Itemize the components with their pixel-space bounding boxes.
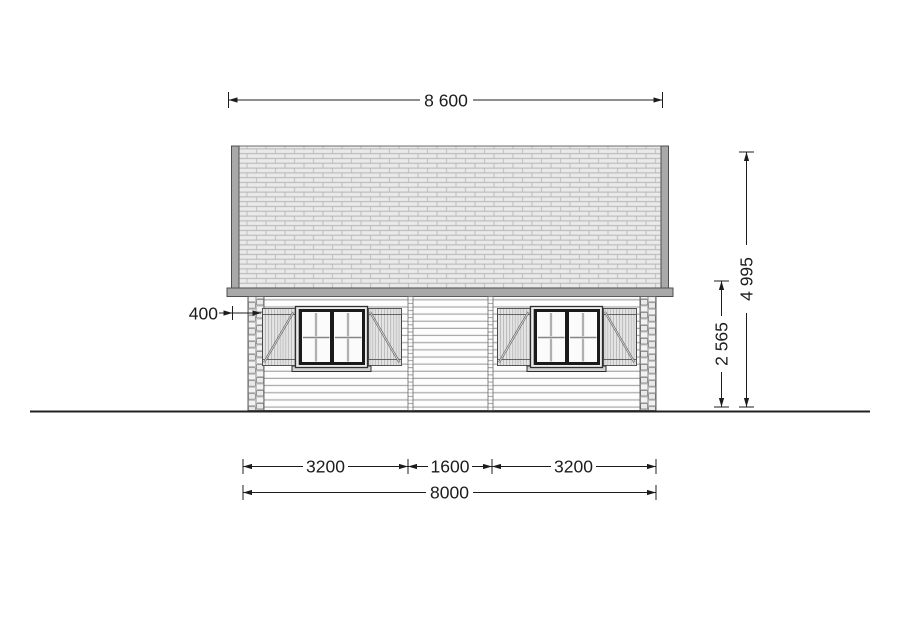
- arrow-left: [243, 464, 252, 469]
- roof: [227, 146, 673, 297]
- sash-right: [568, 311, 599, 364]
- roof-barge-board-left: [232, 146, 240, 292]
- shutter-rail: [604, 360, 637, 366]
- arrow-right: [654, 97, 663, 102]
- dim-label-wall-width: 8000: [430, 483, 469, 503]
- dim-label-roof-width: 8 600: [424, 91, 468, 111]
- elevation-drawing: 8 600 400 4 995 2 565 3200 1600 3200 800…: [0, 0, 900, 637]
- elevation-svg: 8 600 400 4 995 2 565 3200 1600 3200 800…: [0, 0, 900, 637]
- dim-label-bottom-left: 3200: [306, 457, 345, 477]
- arrow-left: [408, 464, 417, 469]
- shutter-rail: [498, 360, 531, 366]
- wall-seam-left: [408, 297, 413, 411]
- arrow-right: [647, 490, 656, 495]
- shutter-rail: [498, 309, 531, 315]
- roof-barge-board-right: [661, 146, 669, 292]
- arrow-right: [647, 464, 656, 469]
- dim-label-wall-height: 2 565: [712, 322, 732, 366]
- roof-fascia: [227, 288, 673, 297]
- wall-seam-right: [488, 297, 493, 411]
- dim-label-corner-offset: 400: [189, 304, 218, 324]
- shutter-rail: [369, 309, 402, 315]
- arrow-left: [243, 490, 252, 495]
- window-right: [498, 307, 637, 372]
- arrow-down: [744, 398, 749, 407]
- window-left: [263, 307, 402, 372]
- arrow-left: [492, 464, 501, 469]
- arrow-right: [399, 464, 408, 469]
- dim-label-total-height: 4 995: [737, 257, 757, 301]
- shutter-rail: [369, 360, 402, 366]
- dim-label-bottom-middle: 1600: [431, 457, 470, 477]
- dim-label-bottom-right: 3200: [554, 457, 593, 477]
- sash-right: [333, 311, 364, 364]
- arrow-left: [229, 97, 238, 102]
- sash-left: [536, 311, 567, 364]
- arrow-up: [719, 281, 724, 290]
- shutter-rail: [604, 309, 637, 315]
- arrow-right: [224, 310, 233, 315]
- arrow-down: [719, 398, 724, 407]
- shutter-rail: [263, 309, 296, 315]
- sash-left: [301, 311, 332, 364]
- roof-shingle-field: [239, 146, 661, 288]
- arrow-right: [483, 464, 492, 469]
- arrow-up: [744, 152, 749, 161]
- shutter-rail: [263, 360, 296, 366]
- corner-logs-right: [640, 297, 656, 411]
